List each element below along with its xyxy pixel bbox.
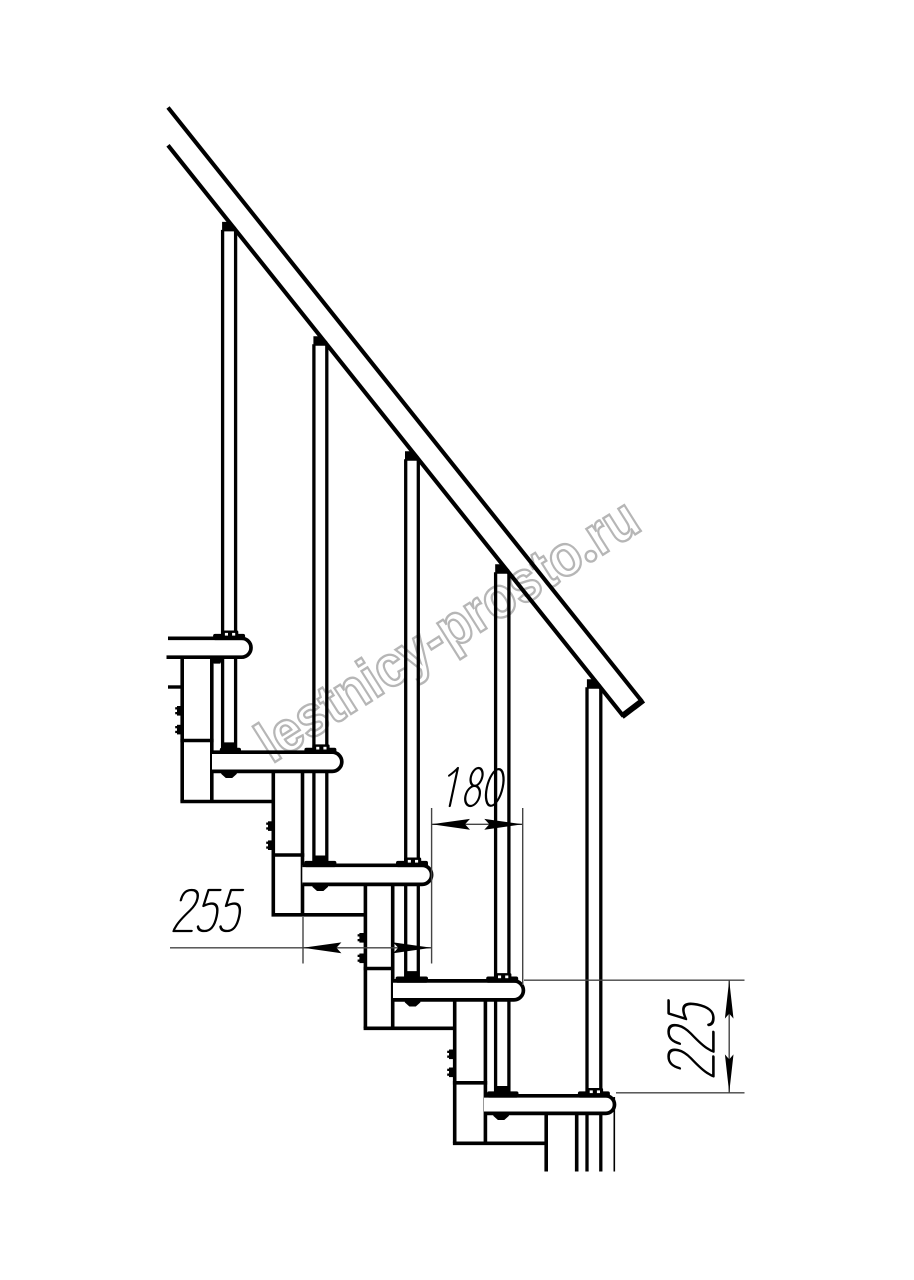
svg-text:ru: ru <box>572 485 651 568</box>
